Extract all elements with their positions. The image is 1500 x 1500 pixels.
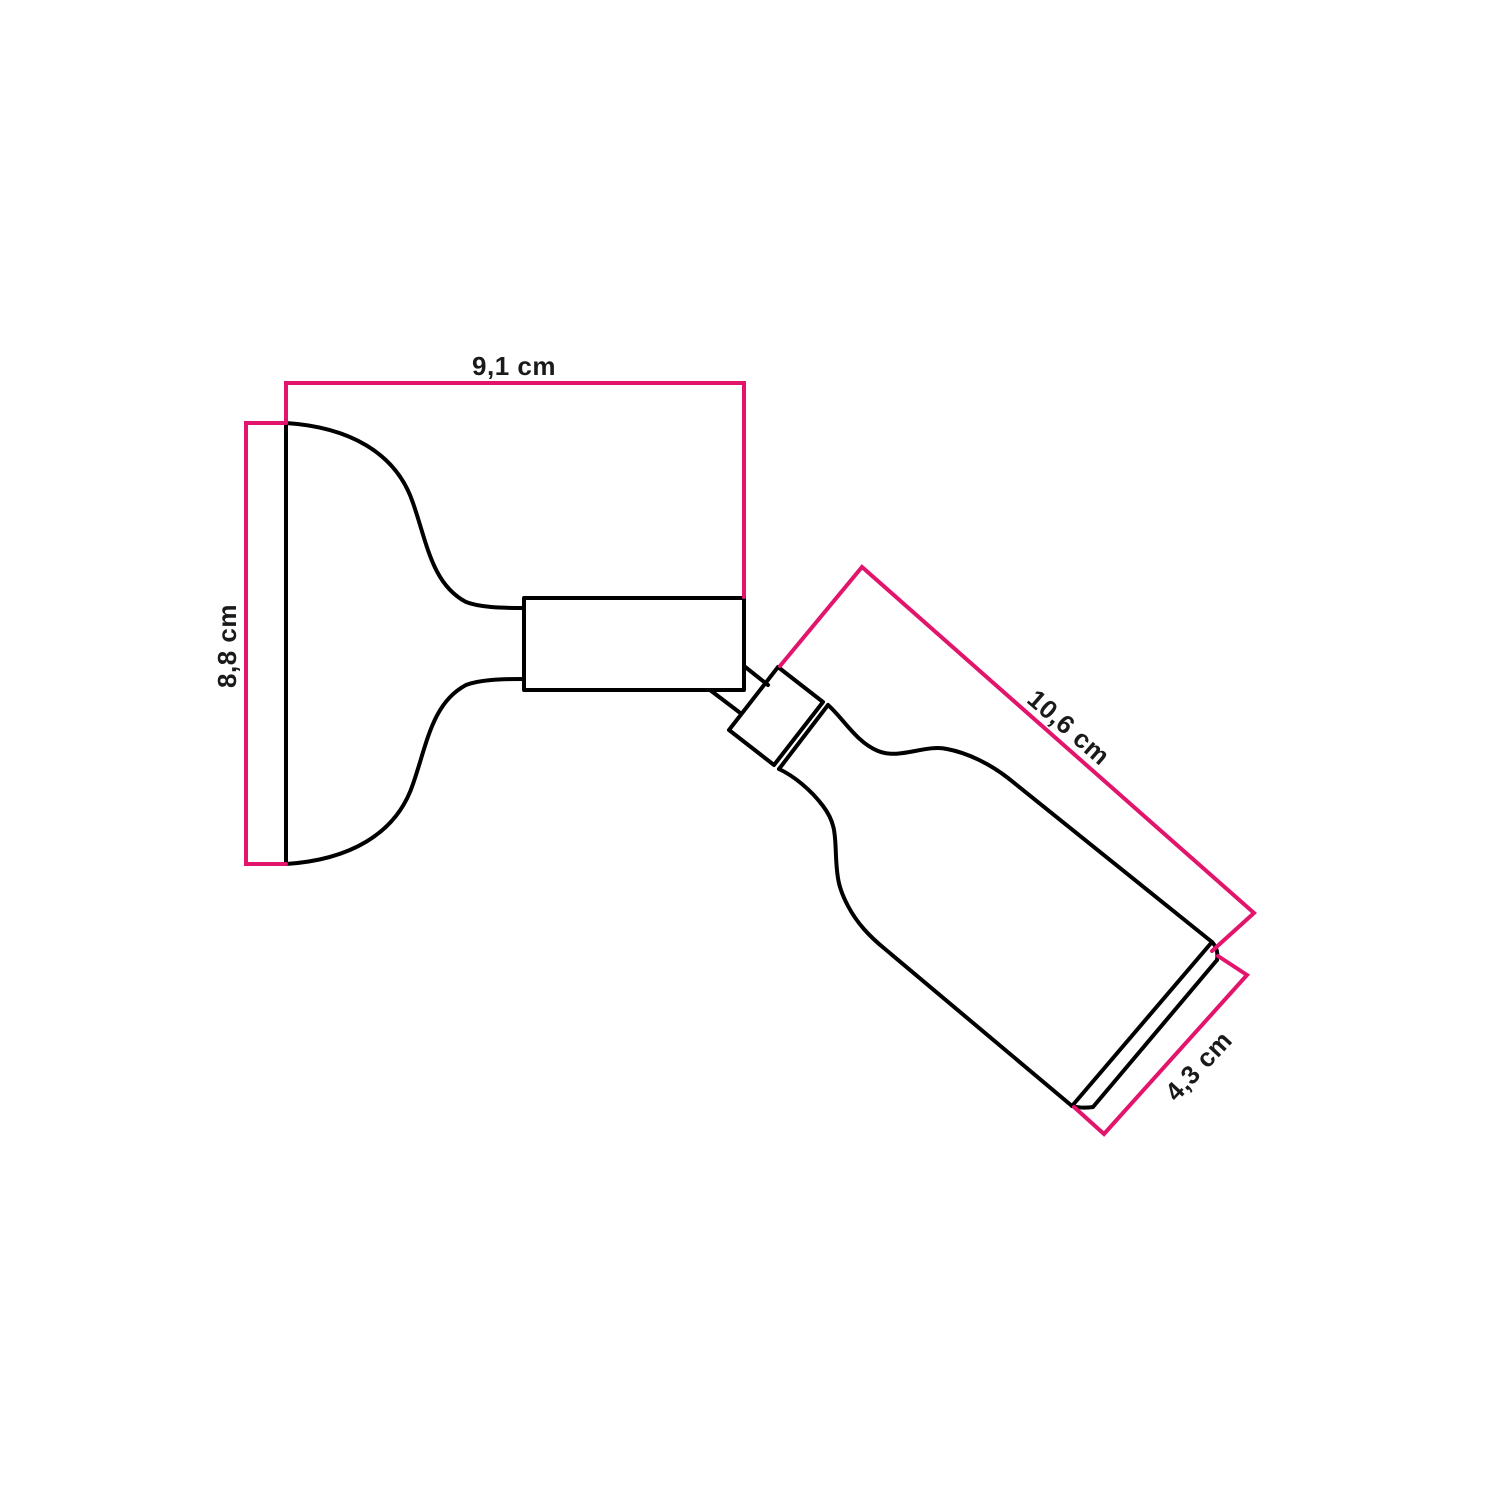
lamp-outline-group: [286, 423, 1217, 1108]
dimension-line-mount-height: [246, 423, 286, 864]
mount-width-label: 9,1 cm: [472, 351, 556, 381]
spot-bottom-profile: [779, 769, 1072, 1106]
spot-diameter-label: 4,3 cm: [1159, 1025, 1238, 1107]
spot-length-label: 10,6 cm: [1022, 683, 1116, 771]
dimension-line-mount-width: [286, 383, 744, 597]
mount-cylinder: [524, 598, 744, 690]
dimension-labels-group: 9,1 cm 8,8 cm 10,6 cm 4,3 cm: [212, 351, 1238, 1107]
joint-seam-line: [779, 705, 828, 769]
wall-plate-outline: [286, 423, 524, 864]
dimension-diagram: 9,1 cm 8,8 cm 10,6 cm 4,3 cm: [0, 0, 1500, 1500]
mount-height-label: 8,8 cm: [212, 604, 242, 688]
wall-spotlight-dimension-drawing: 9,1 cm 8,8 cm 10,6 cm 4,3 cm: [0, 0, 1500, 1500]
dimension-line-spot-length: [780, 567, 1254, 951]
